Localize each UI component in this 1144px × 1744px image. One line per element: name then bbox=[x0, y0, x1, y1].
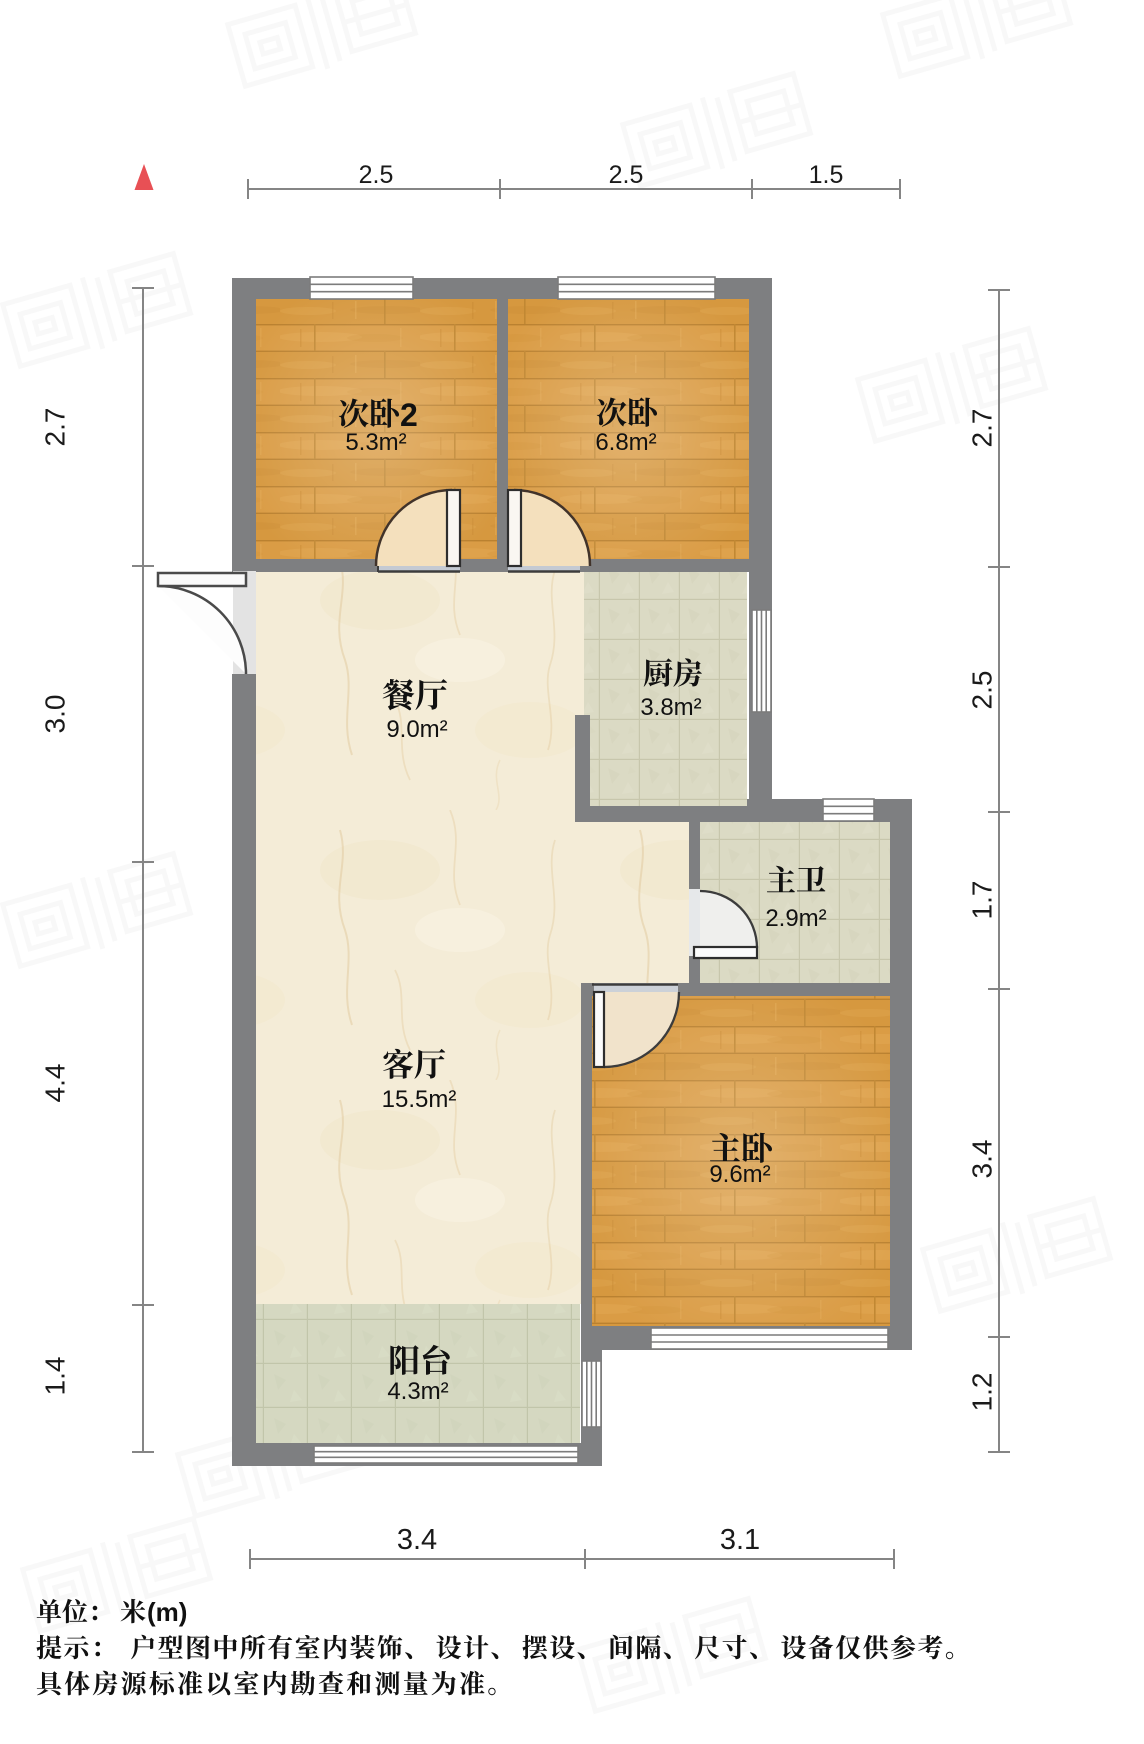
svg-text:3.4: 3.4 bbox=[966, 1140, 997, 1179]
svg-text:9.0m²: 9.0m² bbox=[386, 716, 447, 743]
svg-text:3.0: 3.0 bbox=[39, 695, 70, 734]
svg-text:2.7: 2.7 bbox=[39, 408, 70, 447]
svg-text:5.3m²: 5.3m² bbox=[345, 429, 406, 456]
svg-text:2.7: 2.7 bbox=[966, 409, 997, 448]
svg-text:2.5: 2.5 bbox=[966, 671, 997, 710]
svg-text:2: 2 bbox=[400, 397, 418, 433]
svg-text:4.4: 4.4 bbox=[39, 1064, 70, 1103]
svg-text:9.6m²: 9.6m² bbox=[709, 1161, 770, 1188]
svg-text:2.9m²: 2.9m² bbox=[765, 905, 826, 932]
svg-text:3.8m²: 3.8m² bbox=[640, 694, 701, 721]
svg-text:2.5: 2.5 bbox=[359, 161, 394, 189]
svg-text:15.5m²: 15.5m² bbox=[382, 1086, 457, 1113]
svg-text:2.5: 2.5 bbox=[609, 161, 644, 189]
svg-text:(m): (m) bbox=[147, 1597, 187, 1627]
svg-text:4.3m²: 4.3m² bbox=[387, 1378, 448, 1405]
svg-text:6.8m²: 6.8m² bbox=[595, 429, 656, 456]
svg-text:3.4: 3.4 bbox=[397, 1524, 437, 1556]
svg-text:1.4: 1.4 bbox=[39, 1357, 70, 1396]
svg-text:1.7: 1.7 bbox=[966, 881, 997, 920]
svg-text:1.5: 1.5 bbox=[809, 161, 844, 189]
svg-text:1.2: 1.2 bbox=[966, 1373, 997, 1412]
svg-text:3.1: 3.1 bbox=[720, 1524, 760, 1556]
